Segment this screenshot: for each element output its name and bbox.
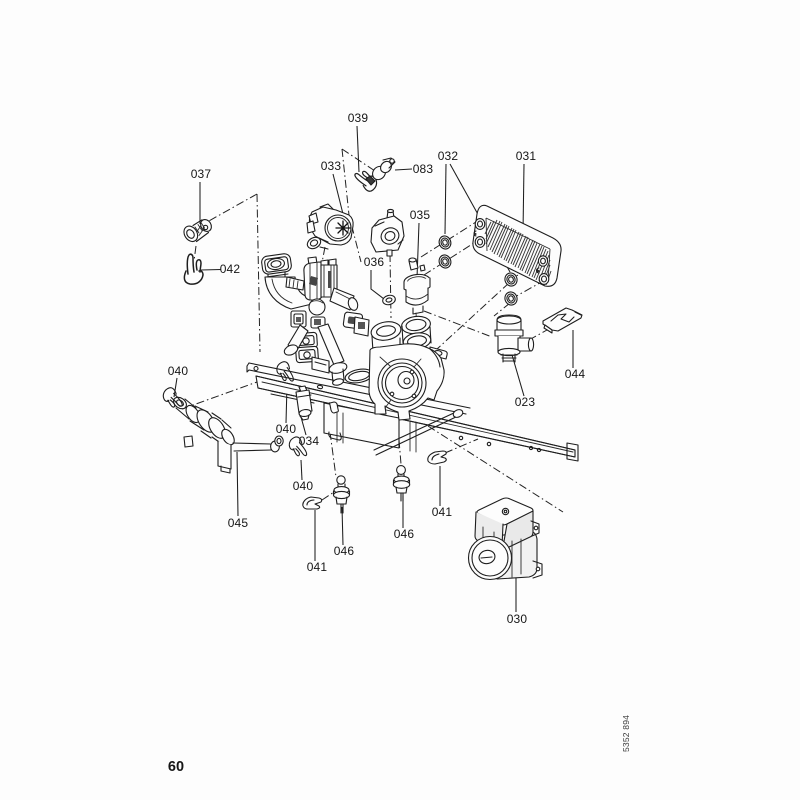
svg-text:60: 60	[168, 759, 184, 775]
svg-text:045: 045	[228, 516, 249, 530]
svg-text:041: 041	[432, 505, 453, 519]
svg-text:046: 046	[394, 527, 415, 541]
svg-text:040: 040	[276, 422, 297, 436]
svg-text:040: 040	[293, 479, 314, 493]
svg-text:039: 039	[348, 111, 369, 125]
svg-text:037: 037	[191, 167, 212, 181]
svg-text:032: 032	[438, 149, 459, 163]
svg-text:035: 035	[410, 208, 431, 222]
svg-text:5352 894: 5352 894	[621, 715, 631, 752]
svg-text:033: 033	[321, 159, 342, 173]
svg-text:036: 036	[364, 255, 385, 269]
svg-text:023: 023	[515, 395, 536, 409]
svg-text:083: 083	[413, 162, 434, 176]
svg-text:041: 041	[307, 560, 328, 574]
svg-text:031: 031	[516, 149, 537, 163]
svg-text:046: 046	[334, 544, 355, 558]
svg-text:040: 040	[168, 364, 189, 378]
svg-text:030: 030	[507, 612, 528, 626]
svg-text:044: 044	[565, 367, 586, 381]
svg-text:042: 042	[220, 262, 241, 276]
